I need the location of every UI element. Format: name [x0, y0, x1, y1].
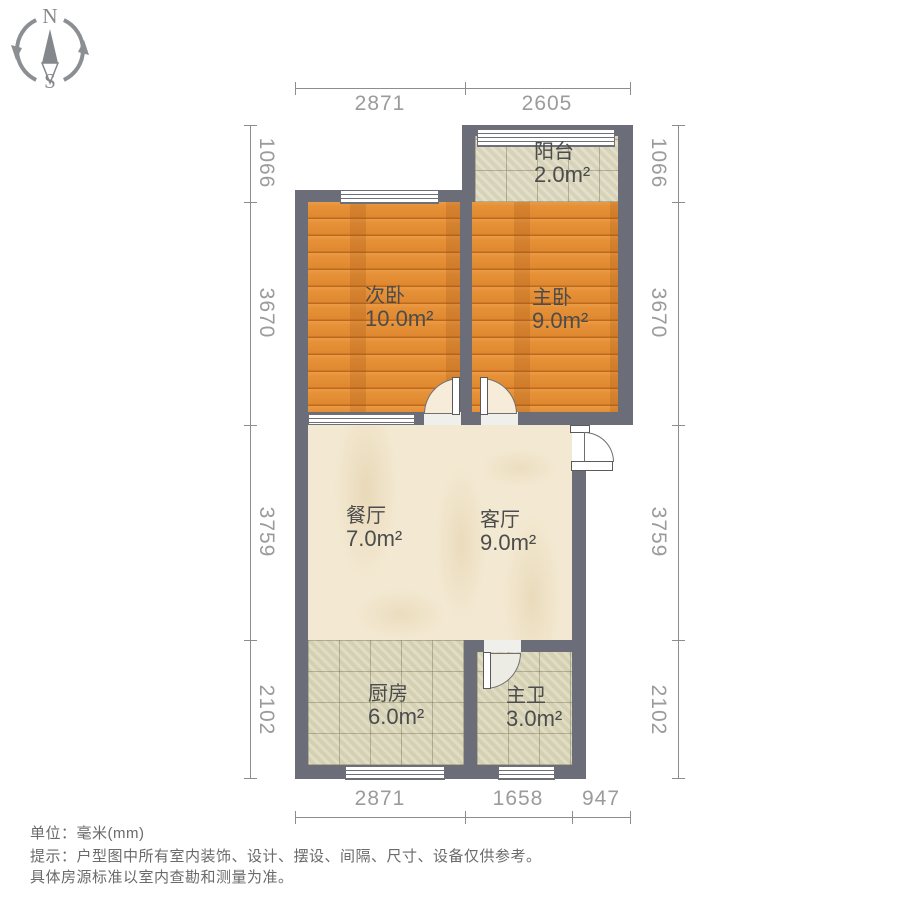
dim-label-top-2: 2605 — [522, 92, 573, 116]
door-second-bedroom-leaf — [452, 377, 460, 415]
room-area: 3.0m² — [506, 707, 562, 731]
dim-tick — [672, 125, 685, 126]
footer-tip-line1: 提示：户型图中所有室内装饰、设计、摆设、间隔、尺寸、设备仅供参考。 — [30, 846, 542, 867]
room-area: 7.0m² — [346, 527, 402, 551]
room-name: 次卧 — [365, 286, 433, 307]
door-entry-swing — [584, 432, 614, 462]
compass-arrow-east-icon — [78, 40, 89, 55]
dim-label-right-1: 1066 — [646, 138, 670, 189]
floorplan-page: N S 阳台 2.0m² 次卧 10.0m² — [0, 0, 905, 900]
wall-left — [295, 190, 308, 779]
room-name: 阳台 — [534, 142, 590, 163]
room-name: 厨房 — [368, 684, 424, 705]
room-area: 9.0m² — [532, 309, 588, 333]
door-entry-leaf — [571, 461, 613, 471]
dimension-line-left — [250, 125, 251, 779]
window-bath — [498, 766, 555, 780]
room-label-dining: 餐厅 7.0m² — [346, 506, 402, 551]
room-area: 6.0m² — [368, 705, 424, 729]
dim-label-right-4: 2102 — [646, 685, 670, 736]
wall-bedroom-divider — [460, 202, 472, 412]
dimension-line-bottom — [295, 817, 630, 818]
dim-tick — [244, 778, 257, 779]
dimension-line-top — [295, 88, 630, 89]
dim-label-bottom-3: 947 — [582, 787, 620, 811]
compass-north-label: N — [42, 6, 57, 28]
dim-tick — [672, 778, 685, 779]
compass-arrow-west-icon — [11, 45, 22, 60]
dim-label-left-2: 3670 — [254, 288, 278, 339]
dim-tick — [572, 811, 573, 824]
dim-label-bottom-1: 2871 — [355, 787, 406, 811]
dim-label-top-1: 2871 — [355, 92, 406, 116]
door-master-bedroom-leaf — [480, 377, 488, 415]
dimension-line-right — [678, 125, 679, 779]
compass-south-label: S — [44, 69, 56, 90]
dim-tick — [244, 125, 257, 126]
room-label-balcony: 阳台 2.0m² — [534, 142, 590, 187]
dim-label-bottom-2: 1658 — [493, 787, 544, 811]
dim-tick — [672, 202, 685, 203]
footer-tip-line2: 具体房源标准以室内查勘和测量为准。 — [30, 867, 294, 888]
dim-label-right-3: 3759 — [646, 507, 670, 558]
window-kitchen — [345, 766, 445, 780]
wall-right-upper — [618, 125, 633, 425]
dim-tick — [244, 202, 257, 203]
dim-tick — [244, 640, 257, 641]
window-interior-strip — [308, 414, 415, 425]
door-bath-leaf — [483, 652, 491, 689]
room-area: 9.0m² — [480, 531, 536, 555]
dim-tick — [295, 811, 296, 824]
room-label-master-bedroom: 主卧 9.0m² — [532, 288, 588, 333]
wall-right-lower — [572, 425, 586, 779]
room-area: 10.0m² — [365, 307, 433, 331]
dim-tick — [672, 640, 685, 641]
wall-kitchen-bath-divider — [464, 640, 477, 765]
room-name: 餐厅 — [346, 506, 402, 527]
dim-label-left-4: 2102 — [254, 685, 278, 736]
room-name: 客厅 — [480, 510, 536, 531]
room-label-second-bedroom: 次卧 10.0m² — [365, 286, 433, 331]
compass-icon: N S — [8, 6, 92, 90]
footer-unit-note: 单位：毫米(mm) — [30, 823, 144, 844]
window-second-bedroom — [340, 190, 439, 204]
room-label-kitchen: 厨房 6.0m² — [368, 684, 424, 729]
room-area: 2.0m² — [534, 163, 590, 187]
dim-tick — [295, 82, 296, 95]
dim-label-left-3: 3759 — [254, 507, 278, 558]
room-name: 主卫 — [506, 686, 562, 707]
dim-tick — [244, 425, 257, 426]
dim-label-left-1: 1066 — [254, 138, 278, 189]
dim-tick — [630, 82, 631, 95]
compass-needle-icon — [42, 29, 58, 63]
dim-tick — [465, 82, 466, 95]
dim-tick — [630, 811, 631, 824]
room-name: 主卧 — [532, 288, 588, 309]
room-label-master-bath: 主卫 3.0m² — [506, 686, 562, 731]
dim-tick — [465, 811, 466, 824]
dim-tick — [672, 425, 685, 426]
room-label-living: 客厅 9.0m² — [480, 510, 536, 555]
door-bath-threshold — [484, 640, 521, 652]
dim-label-right-2: 3670 — [646, 288, 670, 339]
